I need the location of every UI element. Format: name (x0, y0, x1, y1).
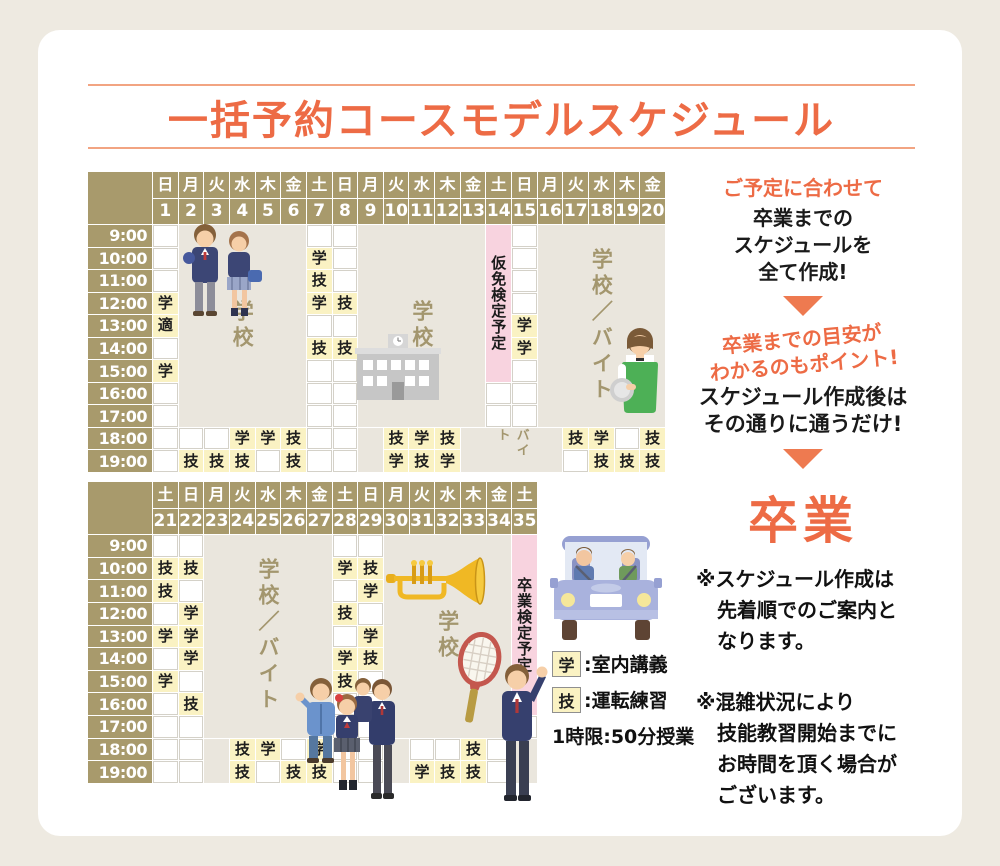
empty-cell (153, 225, 178, 247)
time-label: 15:00 (88, 671, 152, 693)
lead-black-text: 卒業までの スケジュールを 全て作成! (688, 205, 918, 286)
empty-cell (307, 360, 332, 382)
weekday-header: 月 (384, 482, 409, 508)
day-number-header: 35 (512, 509, 537, 534)
time-label: 16:00 (88, 383, 152, 405)
schedule-cell: 適 (153, 315, 178, 337)
time-label: 16:00 (88, 693, 152, 715)
day-number-header: 24 (230, 509, 255, 534)
day-number-header: 16 (538, 199, 563, 224)
weekday-header: 日 (512, 172, 537, 198)
schedule-cell: 技 (204, 450, 229, 472)
merged-activity-block: バイト (461, 428, 563, 472)
trumpet-illustration (386, 552, 486, 612)
empty-cell (333, 405, 358, 427)
down-arrow-icon (783, 449, 823, 469)
schedule-cell: 学 (333, 558, 358, 580)
legend: 学 :室内講義 技 :運転練習 1時限:50分授業 (552, 650, 682, 749)
schedule-cell: 学 (179, 648, 204, 670)
empty-cell (179, 428, 204, 450)
legend-row-lecture: 学 :室内講義 (552, 650, 682, 677)
lecture-mark: 学 (552, 651, 581, 677)
schedule-cell: 技 (589, 450, 614, 472)
day-number-header: 8 (333, 199, 358, 224)
weekday-header: 日 (358, 482, 383, 508)
day-number-header: 30 (384, 509, 409, 534)
weekday-header: 月 (538, 172, 563, 198)
blank-block (204, 739, 229, 783)
schedule-cell: 学 (153, 360, 178, 382)
weekday-header: 火 (204, 172, 229, 198)
school-building-illustration (350, 330, 446, 402)
empty-cell (307, 315, 332, 337)
time-label: 18:00 (88, 739, 152, 761)
weekday-header: 木 (615, 172, 640, 198)
empty-cell (512, 405, 537, 427)
day-number-header: 3 (204, 199, 229, 224)
weekday-header: 月 (179, 172, 204, 198)
footnotes: ※スケジュール作成は 先着順でのご案内と なります。 ※混雑状況により 技能教習… (696, 564, 926, 811)
schedule-cell: 技 (179, 693, 204, 715)
time-label: 9:00 (88, 535, 152, 557)
empty-cell (153, 248, 178, 270)
schedule-cell: 技 (230, 761, 255, 783)
empty-cell (153, 405, 178, 427)
day-number-header: 33 (461, 509, 486, 534)
schedule-cell: 学 (153, 671, 178, 693)
driving-mark: 技 (552, 687, 581, 713)
empty-cell (512, 225, 537, 247)
day-number-header: 13 (461, 199, 486, 224)
weekday-header: 木 (435, 172, 460, 198)
schedule-cell: 学 (230, 428, 255, 450)
empty-cell (179, 535, 204, 557)
schedule-cell: 技 (153, 558, 178, 580)
time-label: 14:00 (88, 648, 152, 670)
schedule-cell: 学 (256, 739, 281, 761)
schedule-cell: 技 (409, 450, 434, 472)
point-orange-text: 卒業までの目安が わかるのもポイント! (681, 316, 925, 389)
lead-orange-text: ご予定に合わせて (688, 172, 918, 201)
schedule-cell: 技 (281, 761, 306, 783)
weekday-header: 土 (153, 482, 178, 508)
day-number-header: 29 (358, 509, 383, 534)
empty-cell (153, 338, 178, 360)
empty-cell (153, 535, 178, 557)
schedule-cell: 技 (384, 428, 409, 450)
schedule-cell: 学 (153, 293, 178, 315)
schedule-cell: 技 (461, 739, 486, 761)
empty-cell (256, 450, 281, 472)
empty-cell (153, 716, 178, 738)
empty-cell (307, 450, 332, 472)
empty-cell (153, 270, 178, 292)
schedule-cell: 技 (333, 293, 358, 315)
day-number-header: 7 (307, 199, 332, 224)
footnote-congestion: ※混雑状況により 技能教習開始までに お時間を頂く場合が ございます。 (696, 687, 926, 811)
schedule-cell: 技 (333, 603, 358, 625)
after-black-text: スケジュール作成後は その通りに通うだけ! (688, 384, 918, 439)
day-number-header: 2 (179, 199, 204, 224)
empty-cell (410, 739, 435, 761)
schedule-cell: 技 (435, 761, 460, 783)
empty-cell (179, 580, 204, 602)
day-number-header: 14 (486, 199, 511, 224)
schedule-cell: 学 (512, 338, 537, 360)
schedule-cell: 学 (358, 626, 383, 648)
time-label: 19:00 (88, 450, 152, 472)
empty-cell (153, 450, 178, 472)
weekday-header: 月 (358, 172, 383, 198)
weekday-header: 金 (487, 482, 512, 508)
weekday-header: 水 (435, 482, 460, 508)
title-rule-top (88, 84, 915, 86)
weekday-header: 木 (281, 482, 306, 508)
benefits-column: ご予定に合わせて 卒業までの スケジュールを 全て作成! 卒業までの目安が わか… (688, 172, 918, 553)
weekday-header: 土 (307, 172, 332, 198)
day-number-header: 31 (410, 509, 435, 534)
schedule-cell: 学 (153, 626, 178, 648)
schedule-cell: 学 (435, 450, 460, 472)
day-number-header: 28 (333, 509, 358, 534)
empty-cell (512, 270, 537, 292)
weekday-header: 水 (589, 172, 614, 198)
day-number-header: 9 (358, 199, 383, 224)
schedule-poster: 一括予約コースモデルスケジュール 日1月2火3水4木5金6土7日8月9火10水1… (0, 0, 1000, 866)
empty-cell (153, 383, 178, 405)
time-label: 18:00 (88, 428, 152, 450)
empty-cell (333, 626, 358, 648)
block-label: バイト (493, 428, 531, 472)
empty-cell (307, 225, 332, 247)
time-label: 12:00 (88, 293, 152, 315)
empty-cell (333, 450, 358, 472)
time-label: 10:00 (88, 558, 152, 580)
day-number-header: 12 (435, 199, 460, 224)
day-number-header: 1 (153, 199, 178, 224)
empty-cell (333, 535, 358, 557)
empty-cell (333, 248, 358, 270)
empty-cell (307, 383, 332, 405)
day-number-header: 20 (640, 199, 665, 224)
time-label: 10:00 (88, 248, 152, 270)
empty-cell (358, 603, 383, 625)
empty-cell (153, 648, 178, 670)
schedule-cell: 学 (358, 580, 383, 602)
time-label: 13:00 (88, 626, 152, 648)
schedule-cell: 技 (307, 761, 332, 783)
table-corner (88, 482, 152, 534)
legend-row-driving: 技 :運転練習 (552, 686, 682, 713)
weekday-header: 日 (333, 172, 358, 198)
day-number-header: 19 (615, 199, 640, 224)
empty-cell (153, 603, 178, 625)
empty-cell (333, 580, 358, 602)
driving-label: :運転練習 (584, 686, 668, 713)
day-number-header: 10 (384, 199, 409, 224)
day-number-header: 6 (281, 199, 306, 224)
empty-cell (204, 428, 229, 450)
schedule-cell: 学 (410, 761, 435, 783)
schedule-cell: 技 (281, 428, 306, 450)
weekday-header: 火 (230, 482, 255, 508)
empty-cell (179, 739, 204, 761)
schedule-cell: 技 (358, 558, 383, 580)
schedule-cell: 技 (281, 450, 306, 472)
day-number-header: 27 (307, 509, 332, 534)
schedule-cell: 技 (615, 450, 640, 472)
block-label: 仮免検定予定 (488, 255, 509, 351)
empty-cell (179, 716, 204, 738)
time-label: 17:00 (88, 405, 152, 427)
waitress-illustration (606, 326, 670, 434)
page-title: 一括予約コースモデルスケジュール (88, 88, 915, 146)
schedule-cell: 学 (333, 648, 358, 670)
day-number-header: 17 (563, 199, 588, 224)
day-number-header: 32 (435, 509, 460, 534)
three-students-illustration (330, 672, 404, 808)
schedule-cell: 学 (179, 603, 204, 625)
schedule-cell: 学 (307, 248, 332, 270)
weekday-header: 土 (486, 172, 511, 198)
empty-cell (512, 383, 537, 405)
empty-cell (358, 535, 383, 557)
time-label: 14:00 (88, 338, 152, 360)
weekday-header: 月 (204, 482, 229, 508)
schedule-cell: 技 (307, 338, 332, 360)
graduation-text: 卒業 (688, 481, 918, 553)
day-number-header: 11 (409, 199, 434, 224)
schedule-cell: 技 (179, 558, 204, 580)
schedule-cell: 技 (563, 428, 588, 450)
empty-cell (333, 225, 358, 247)
weekday-header: 木 (256, 172, 281, 198)
empty-cell (307, 428, 332, 450)
empty-cell (153, 693, 178, 715)
schedule-cell: 学 (256, 428, 281, 450)
day-number-header: 5 (256, 199, 281, 224)
empty-cell (256, 761, 281, 783)
weekday-header: 土 (333, 482, 358, 508)
students-pair-illustration (182, 222, 264, 340)
time-label: 11:00 (88, 270, 152, 292)
empty-cell (333, 270, 358, 292)
empty-cell (153, 428, 178, 450)
block-label: 学校／バイト (253, 558, 283, 714)
weekday-header: 木 (461, 482, 486, 508)
suit-man-illustration (490, 658, 548, 806)
title-rule-bottom (88, 147, 915, 149)
empty-cell (435, 739, 460, 761)
empty-cell (512, 360, 537, 382)
day-number-header: 15 (512, 199, 537, 224)
weekday-header: 水 (230, 172, 255, 198)
schedule-cell: 技 (358, 648, 383, 670)
time-label: 12:00 (88, 603, 152, 625)
empty-cell (512, 293, 537, 315)
schedule-cell: 学 (512, 315, 537, 337)
footnote-schedule: ※スケジュール作成は 先着順でのご案内と なります。 (696, 564, 926, 657)
lecture-label: :室内講義 (584, 650, 668, 677)
schedule-table-days-1-20: 日1月2火3水4木5金6土7日8月9火10水11木12金13土14日15月16火… (88, 172, 665, 472)
schedule-cell: 学 (179, 626, 204, 648)
weekday-header: 水 (409, 172, 434, 198)
exam-block: 仮免検定予定 (486, 225, 511, 382)
day-number-header: 4 (230, 199, 255, 224)
day-number-header: 21 (153, 509, 178, 534)
schedule-cell: 技 (640, 450, 665, 472)
schedule-cell: 技 (230, 739, 255, 761)
time-label: 19:00 (88, 761, 152, 783)
weekday-header: 土 (512, 482, 537, 508)
day-number-header: 23 (204, 509, 229, 534)
day-number-header: 26 (281, 509, 306, 534)
table-corner (88, 172, 152, 224)
weekday-header: 金 (461, 172, 486, 198)
schedule-cell: 学 (409, 428, 434, 450)
schedule-cell: 技 (230, 450, 255, 472)
empty-cell (179, 671, 204, 693)
weekday-header: 金 (281, 172, 306, 198)
driving-car-illustration (548, 528, 664, 642)
weekday-header: 火 (410, 482, 435, 508)
time-label: 9:00 (88, 225, 152, 247)
weekday-header: 火 (384, 172, 409, 198)
down-arrow-icon (783, 296, 823, 316)
schedule-cell: 技 (153, 580, 178, 602)
weekday-header: 日 (153, 172, 178, 198)
empty-cell (486, 383, 511, 405)
schedule-cell: 技 (307, 270, 332, 292)
empty-cell (179, 761, 204, 783)
blank-block (358, 428, 383, 472)
day-number-header: 22 (179, 509, 204, 534)
time-label: 15:00 (88, 360, 152, 382)
schedule-cell: 技 (461, 761, 486, 783)
time-label: 13:00 (88, 315, 152, 337)
schedule-cell: 技 (435, 428, 460, 450)
empty-cell (333, 428, 358, 450)
weekday-header: 日 (179, 482, 204, 508)
empty-cell (153, 761, 178, 783)
schedule-cell: 技 (179, 450, 204, 472)
weekday-header: 金 (640, 172, 665, 198)
schedule-cell: 学 (384, 450, 409, 472)
empty-cell (486, 405, 511, 427)
schedule-cell: 学 (307, 293, 332, 315)
weekday-header: 火 (563, 172, 588, 198)
empty-cell (563, 450, 588, 472)
legend-note: 1時限:50分授業 (552, 722, 682, 749)
day-number-header: 34 (487, 509, 512, 534)
empty-cell (512, 248, 537, 270)
empty-cell (307, 405, 332, 427)
weekday-header: 金 (307, 482, 332, 508)
day-number-header: 18 (589, 199, 614, 224)
day-number-header: 25 (256, 509, 281, 534)
time-label: 17:00 (88, 716, 152, 738)
time-label: 11:00 (88, 580, 152, 602)
empty-cell (153, 739, 178, 761)
weekday-header: 水 (256, 482, 281, 508)
